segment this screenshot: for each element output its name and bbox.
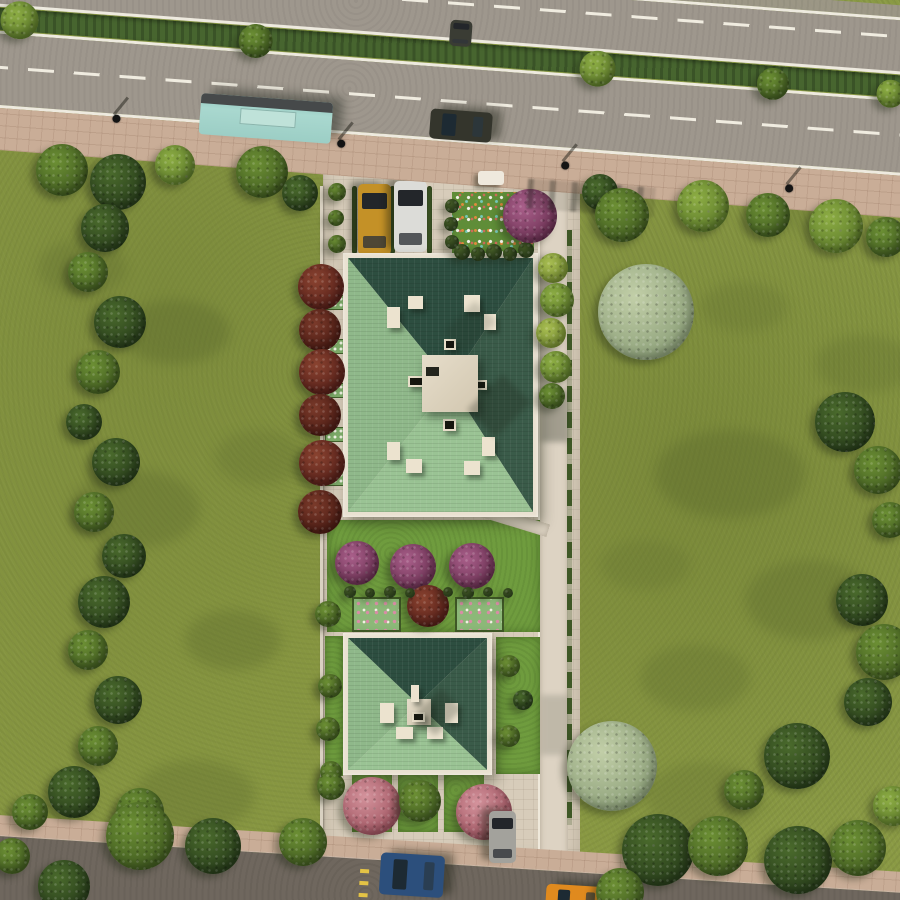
street-tree [764, 826, 832, 894]
parking-bush [328, 235, 346, 253]
field-tree [815, 392, 875, 452]
garden-bush [471, 247, 485, 261]
front-green-bush [317, 772, 345, 800]
garden-bush [444, 217, 458, 231]
ornamental-red-tree [298, 264, 344, 310]
field-tree [724, 770, 764, 810]
courtyard-bush [344, 586, 356, 598]
street-tree [873, 786, 900, 826]
field-tree [677, 180, 729, 232]
courtyard-bush [483, 587, 493, 597]
ornamental-red-tree [299, 309, 341, 351]
street-tree [185, 818, 241, 874]
parked-car-gray [489, 811, 516, 863]
ornamental-red-tree [299, 349, 345, 395]
street-tree [38, 860, 90, 900]
sage-tree [567, 721, 657, 811]
garden-bush [445, 199, 459, 213]
building-side-tree [538, 253, 568, 283]
field-tree [78, 726, 118, 766]
courtyard-bush [462, 587, 474, 599]
ornamental-red-tree [299, 394, 341, 436]
side-lawn-bush [513, 690, 533, 710]
building-side-tree [540, 351, 572, 383]
courtyard-bush [443, 587, 453, 597]
garden-bush [503, 247, 517, 261]
field-tree [764, 723, 830, 789]
street-tree [830, 820, 886, 876]
front-pink-tree [343, 777, 401, 835]
field-tree [68, 630, 108, 670]
parking-bush [328, 210, 344, 226]
field-tree [836, 574, 888, 626]
field-tree [74, 492, 114, 532]
street-tree [688, 816, 748, 876]
field-tree [66, 404, 102, 440]
field-tree [746, 193, 790, 237]
building-side-tree [536, 318, 566, 348]
field-tree [78, 576, 130, 628]
building-side-tree [539, 383, 565, 409]
field-tree [282, 175, 318, 211]
ornamental-red-tree [298, 490, 342, 534]
side-lawn-bush [498, 725, 520, 747]
field-tree [94, 296, 146, 348]
field-tree [866, 217, 900, 257]
street-tree [0, 838, 30, 874]
field-tree [155, 145, 195, 185]
ornamental-red-tree [299, 440, 345, 486]
boundary-bush [315, 601, 341, 627]
field-tree [90, 154, 146, 210]
field-tree [81, 204, 129, 252]
field-tree [94, 676, 142, 724]
building-side-tree [540, 283, 574, 317]
field-tree [856, 624, 900, 680]
field-tree [595, 188, 649, 242]
street-tree [279, 818, 327, 866]
boundary-bush [316, 717, 340, 741]
courtyard-bush [384, 586, 396, 598]
field-tree [809, 199, 863, 253]
field-tree [236, 146, 288, 198]
courtyard-bush [503, 588, 513, 598]
field-tree [36, 144, 88, 196]
street-tree [106, 802, 174, 870]
aerial-site-render [0, 0, 900, 900]
courtyard-bush [365, 588, 375, 598]
parking-bush [328, 183, 346, 201]
field-tree [854, 446, 900, 494]
side-lawn-bush [498, 655, 520, 677]
boundary-bush [318, 674, 342, 698]
field-tree [92, 438, 140, 486]
garden-bush [518, 242, 534, 258]
bench [478, 171, 504, 185]
field-tree [102, 534, 146, 578]
field-tree [48, 766, 100, 818]
field-tree [872, 502, 900, 538]
courtyard-purple-tree [449, 543, 495, 589]
garden-bush [486, 244, 502, 260]
trees-and-vehicles-layer [0, 0, 900, 900]
front-green-bush [399, 780, 441, 822]
courtyard-purple-tree [390, 544, 436, 590]
garden-bush [454, 244, 470, 260]
field-tree [68, 252, 108, 292]
courtyard-bush [405, 588, 415, 598]
courtyard-purple-tree [335, 541, 379, 585]
field-tree [844, 678, 892, 726]
sage-tree [598, 264, 694, 360]
field-tree [12, 794, 48, 830]
field-tree [76, 350, 120, 394]
